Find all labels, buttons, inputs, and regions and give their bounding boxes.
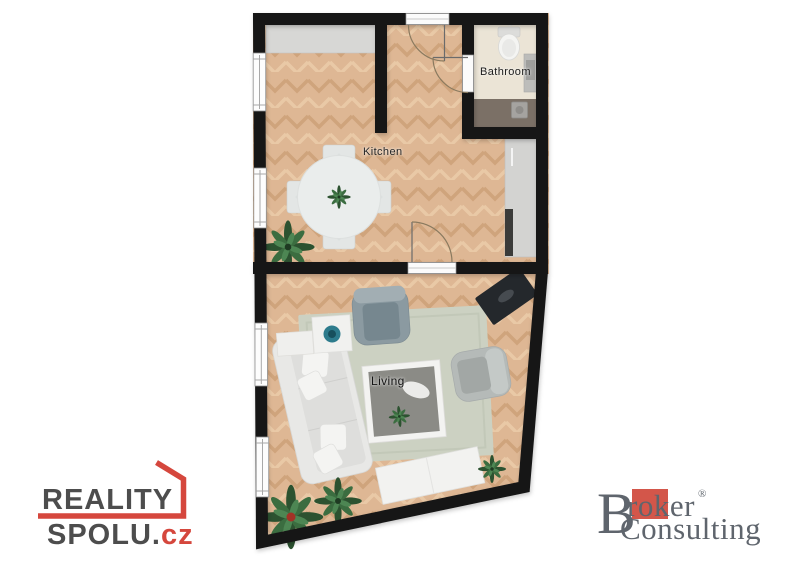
broker-logo-word2: Consulting [620, 513, 761, 544]
reality-logo-line2-main: SPOLU. [47, 519, 161, 551]
armchair-right [449, 345, 513, 404]
kitchen-tall-unit [505, 139, 538, 257]
reality-spolu-logo: REALITY SPOLU.cz [0, 0, 220, 110]
side-table-decor [312, 315, 352, 354]
toilet-icon [498, 27, 520, 60]
floorplan-screenshot: Kitchen Bathroom Living REALITY SPOLU.cz… [0, 0, 800, 565]
kitchen-label: Kitchen [363, 146, 403, 158]
broker-consulting-logo: B roker ® Consulting [590, 480, 795, 560]
armchair-top [351, 285, 411, 346]
reality-logo-tld: cz [161, 519, 194, 551]
washing-machine-icon [512, 102, 528, 118]
side-table [276, 331, 314, 356]
plant-red-bloom [287, 513, 296, 522]
coffee-table [362, 360, 446, 444]
bathroom-label: Bathroom [480, 66, 531, 78]
broker-logo-registered-icon: ® [698, 489, 706, 500]
reality-logo-line1: REALITY [42, 486, 173, 515]
reality-logo-line2: SPOLU.cz [47, 521, 194, 550]
living-label: Living [371, 374, 405, 388]
kitchen-counter [266, 25, 376, 53]
